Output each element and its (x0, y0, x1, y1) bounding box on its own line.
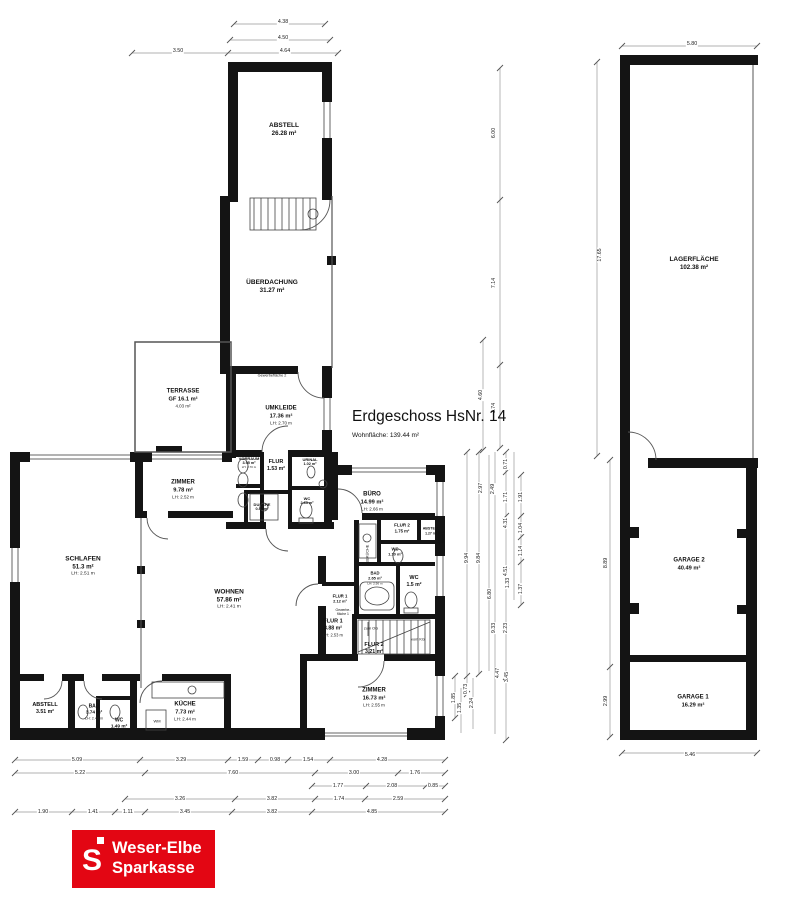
dimension-label: 2.49 (490, 483, 496, 495)
dimension-label: 1.41 (87, 809, 99, 815)
dimension-label: 3.82 (266, 809, 278, 815)
room-label: FLUR 12.12 m² (333, 594, 348, 605)
dimension-label: 4.85 (366, 809, 378, 815)
annotation-label: WM (153, 720, 160, 725)
room-label: WC1.49 m² (111, 718, 127, 731)
annotation-label: vom KG (411, 638, 425, 643)
floorplan-labels: ABSTELL26.28 m²ÜBERDACHUNG31.27 m²TERRAS… (0, 0, 787, 900)
dimension-label: 4.28 (376, 757, 388, 763)
room-label: WC2.63 m² (300, 496, 313, 506)
dimension-label: 1.54 (302, 757, 314, 763)
dimension-label: 3.26 (174, 796, 186, 802)
room-label: TERRASSEGF 16.1 m²4.03 m² (167, 389, 200, 410)
room-label: DUSCHE0.86 m² (254, 502, 271, 512)
dimension-label: 8.89 (603, 557, 609, 569)
dimension-label: 1.77 (332, 783, 344, 789)
room-label: ÜBERDACHUNG31.27 m² (246, 279, 298, 295)
dimension-label: 0.85 (427, 783, 439, 789)
room-label: LAGERFLÄCHE102.38 m² (669, 256, 718, 272)
dimension-label: 1.11 (122, 809, 134, 815)
room-label: VORRAUM3.95 m²LH: 2.70 m (239, 456, 260, 470)
room-label: ZIMMER16.73 m²LH: 2.55 m (362, 688, 386, 709)
dimension-label: 6.00 (491, 127, 497, 139)
room-label: ZIMMER9.78 m²LH: 2.52 m (171, 480, 195, 501)
dimension-label: 0.73 (463, 683, 469, 695)
dimension-label: 0.71 (503, 458, 509, 470)
room-label: BÜRO14.99 m²LH: 2.66 m (361, 492, 384, 513)
dimension-label: 5.46 (684, 752, 696, 758)
dimension-label: 1.04 (518, 522, 524, 534)
dimension-label: 4.64 (279, 48, 291, 54)
sparkasse-s-icon: S (82, 846, 102, 876)
room-label: BAD3.74 m²LH: 2.40 m (85, 703, 103, 720)
dimension-label: 1.71 (503, 491, 509, 503)
room-label: WOHNEN57.86 m²LH: 2.41 m (214, 589, 244, 612)
room-label: BAD2.65 m²LH: 2.56 m (367, 571, 382, 586)
room-label: FLUR1.53 m² (267, 459, 285, 473)
room-label: KÜCHE7.73 m²LH: 2.44 m (174, 702, 196, 723)
annotation-label: Gewerbe- fläche 1 (437, 530, 445, 545)
annotation-label: Gewerbefläche 2 (258, 374, 287, 379)
plan-subtitle: Wohnfläche: 139.44 m² (352, 432, 506, 439)
sparkasse-s-dot (97, 837, 104, 844)
room-label: UMKLEIDE17.36 m²LH: 2.70 m (265, 406, 296, 427)
dimension-label: 7.60 (227, 770, 239, 776)
dimension-label: 4.47 (495, 667, 501, 679)
dimension-label: 6.80 (487, 588, 493, 600)
dimension-label: 1.59 (237, 757, 249, 763)
dimension-label: 17.65 (597, 247, 603, 262)
plan-title-block: Erdgeschoss HsNr. 14 Wohnfläche: 139.44 … (352, 408, 506, 439)
dimension-label: 2.23 (503, 622, 509, 634)
dimension-label: 3.00 (348, 770, 360, 776)
dimension-label: 4.60 (478, 389, 484, 401)
room-label: SCHLAFEN51.3 m²LH: 2.51 m (65, 556, 100, 579)
dimension-label: 2.59 (392, 796, 404, 802)
dimension-label: 4.51 (503, 565, 509, 577)
floorplan-canvas: ABSTELL26.28 m²ÜBERDACHUNG31.27 m²TERRAS… (0, 0, 787, 900)
sparkasse-logo: S Weser-Elbe Sparkasse (72, 830, 215, 888)
dimension-label: 9.33 (491, 622, 497, 634)
plan-title: Erdgeschoss HsNr. 14 (352, 408, 506, 426)
dimension-label: 1.74 (333, 796, 345, 802)
room-label: GARAGE 240.49 m² (673, 557, 704, 572)
dimension-label: 9.94 (464, 552, 470, 564)
dimension-label: 1.37 (518, 583, 524, 595)
dimension-label: 1.91 (518, 491, 524, 503)
dimension-label: 4.50 (277, 35, 289, 41)
dimension-label: 1.90 (37, 809, 49, 815)
room-label: FLUR 21.75 m² (394, 522, 410, 533)
room-label: GARAGE 116.29 m² (677, 694, 708, 709)
room-label: FLUR 13.88 m²LH: 2.53 m (323, 618, 343, 637)
dimension-label: 2.24 (469, 697, 475, 709)
dimension-label: 4.38 (277, 19, 289, 25)
dimension-label: 3.29 (175, 757, 187, 763)
room-label: ABSTELL26.28 m² (269, 122, 299, 138)
dimension-label: 1.33 (505, 577, 511, 589)
dimension-label: 7.14 (491, 277, 497, 289)
dimension-label: 2.08 (386, 783, 398, 789)
sparkasse-wordmark: Weser-Elbe Sparkasse (112, 839, 202, 879)
dimension-label: 3.50 (172, 48, 184, 54)
dimension-label: 3.45 (179, 809, 191, 815)
dimension-label: 0.98 (269, 757, 281, 763)
room-label: WC1.5 m² (406, 575, 421, 589)
dimension-label: 4.31 (503, 517, 509, 529)
dimension-label: 1.35 (457, 702, 463, 714)
room-label: ABSTELL3.51 m² (32, 702, 57, 716)
room-label: FLUR 23.21 m² (364, 642, 383, 656)
room-label: URINAL1.02 m² (302, 457, 317, 467)
annotation-label: TEEKÜCHE (366, 545, 371, 566)
sparkasse-wordmark-line2: Sparkasse (112, 859, 202, 879)
annotation-label: Gewerbe- fläche 1 (336, 608, 351, 616)
dimension-label: 1.14 (518, 545, 524, 557)
dimension-label: 5.09 (71, 757, 83, 763)
dimension-label: 2.99 (603, 695, 609, 707)
dimension-label: 5.80 (686, 41, 698, 47)
dimension-label: 3.45 (504, 671, 510, 683)
dimension-label: 5.22 (74, 770, 86, 776)
room-label: WC1.10 m² (388, 547, 402, 558)
sparkasse-wordmark-line1: Weser-Elbe (112, 839, 202, 859)
dimension-label: 1.76 (409, 770, 421, 776)
dimension-label: 9.84 (476, 552, 482, 564)
dimension-label: 2.97 (478, 482, 484, 494)
dimension-label: 3.82 (266, 796, 278, 802)
annotation-label: zum OG (364, 627, 378, 632)
